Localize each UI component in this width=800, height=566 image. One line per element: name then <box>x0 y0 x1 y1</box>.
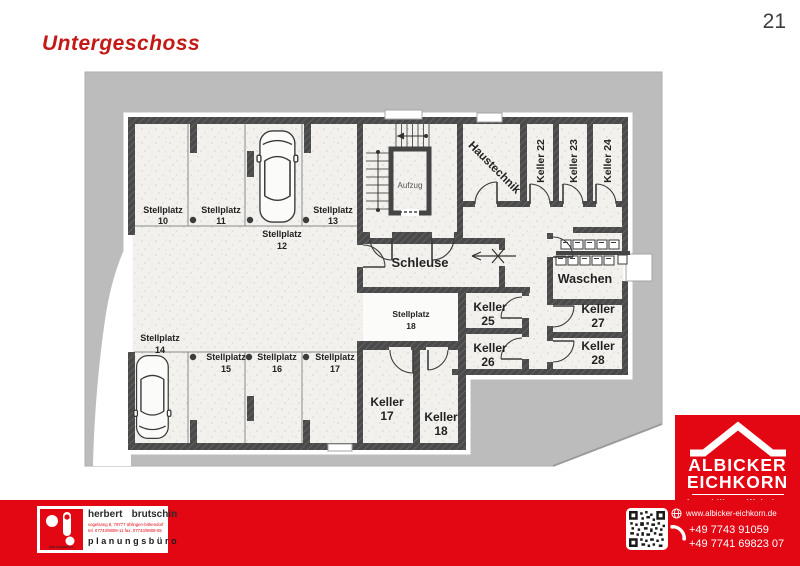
contact-block: www.albicker-eichkorn.de +49 7743 91059 … <box>671 508 797 551</box>
architect-logo-box: planungsbüro herbert brutschin vogelsang… <box>37 506 168 553</box>
keller-25-num: 25 <box>481 314 495 328</box>
stall-10-word: Stellplatz <box>143 205 183 215</box>
stall-17-num: 17 <box>330 364 340 374</box>
architect-mini-text: planungsbüro <box>49 544 74 549</box>
keller-18-word: Keller <box>424 410 458 424</box>
stall-15-num: 15 <box>221 364 231 374</box>
keller-28-num: 28 <box>591 353 605 367</box>
keller-28-word: Keller <box>581 339 615 353</box>
website-text: www.albicker-eichkorn.de <box>686 509 777 518</box>
stall-12-num: 12 <box>277 241 287 251</box>
keller-23-label: Keller 23 <box>568 139 580 183</box>
architect-phones: tel. 07743/9808-11 fax. 07743/9808-55 <box>88 528 179 533</box>
architect-first-name: herbert <box>88 509 122 520</box>
stall-13-word: Stellplatz <box>313 205 353 215</box>
stall-13-num: 13 <box>328 216 338 226</box>
stall-17-word: Stellplatz <box>315 352 355 362</box>
architect-profession: planungsbüro <box>88 536 179 546</box>
roof-icon <box>683 419 793 457</box>
stall-11-num: 11 <box>216 216 226 226</box>
architect-name: herbert brutschin <box>88 509 179 520</box>
phone-number-1: +49 7743 91059 <box>689 523 797 537</box>
keller-27-num: 27 <box>591 316 605 330</box>
phone-icon <box>669 525 686 542</box>
architect-last-name: brutschin <box>132 509 178 520</box>
qr-code <box>626 508 668 550</box>
phone-block: +49 7743 91059 +49 7741 69823 07 <box>671 523 797 551</box>
brand-logo-block: ALBICKER EICHKORN Immobilien + Wohnbau <box>672 412 800 512</box>
brochure-page: Untergeschoss 21 <box>0 0 800 566</box>
keller-24-label: Keller 24 <box>602 139 614 183</box>
car-stellplatz12 <box>257 131 298 222</box>
keller-27-word: Keller <box>581 302 615 316</box>
footer-banner: planungsbüro herbert brutschin vogelsang… <box>0 500 800 566</box>
stall-12-word: Stellplatz <box>262 229 302 239</box>
keller-17-num: 17 <box>380 409 394 423</box>
stall-18-num: 18 <box>406 321 416 331</box>
keller-17-word: Keller <box>370 395 404 409</box>
architect-address: vogelsang 8, 79777 ühlingen-birkendorf <box>88 522 179 527</box>
stall-15-word: Stellplatz <box>206 352 246 362</box>
stall-16-num: 16 <box>272 364 282 374</box>
keller-26-word: Keller <box>473 341 507 355</box>
stall-11-word: Stellplatz <box>201 205 241 215</box>
aufzug-label: Aufzug <box>398 181 423 190</box>
stall-18-word: Stellplatz <box>392 309 429 319</box>
car-stellplatz14 <box>134 356 171 439</box>
brand-name-line2: EICHKORN <box>675 474 800 491</box>
stall-14-word: Stellplatz <box>140 333 180 343</box>
schleuse-label: Schleuse <box>391 255 448 270</box>
keller-25-word: Keller <box>473 300 507 314</box>
brand-divider <box>692 494 784 495</box>
keller-22-label: Keller 22 <box>535 139 547 183</box>
phone-number-2: +49 7741 69823 07 <box>689 537 797 551</box>
stall-16-word: Stellplatz <box>257 352 297 362</box>
architect-logo-mark: planungsbüro <box>40 509 83 550</box>
stall-14-num: 14 <box>155 345 165 355</box>
stall-10-num: 10 <box>158 216 168 226</box>
waschen-label: Waschen <box>558 272 612 286</box>
website-row: www.albicker-eichkorn.de <box>671 508 797 519</box>
keller-26-num: 26 <box>481 355 495 369</box>
globe-icon <box>671 508 682 519</box>
keller-18-num: 18 <box>434 424 448 438</box>
